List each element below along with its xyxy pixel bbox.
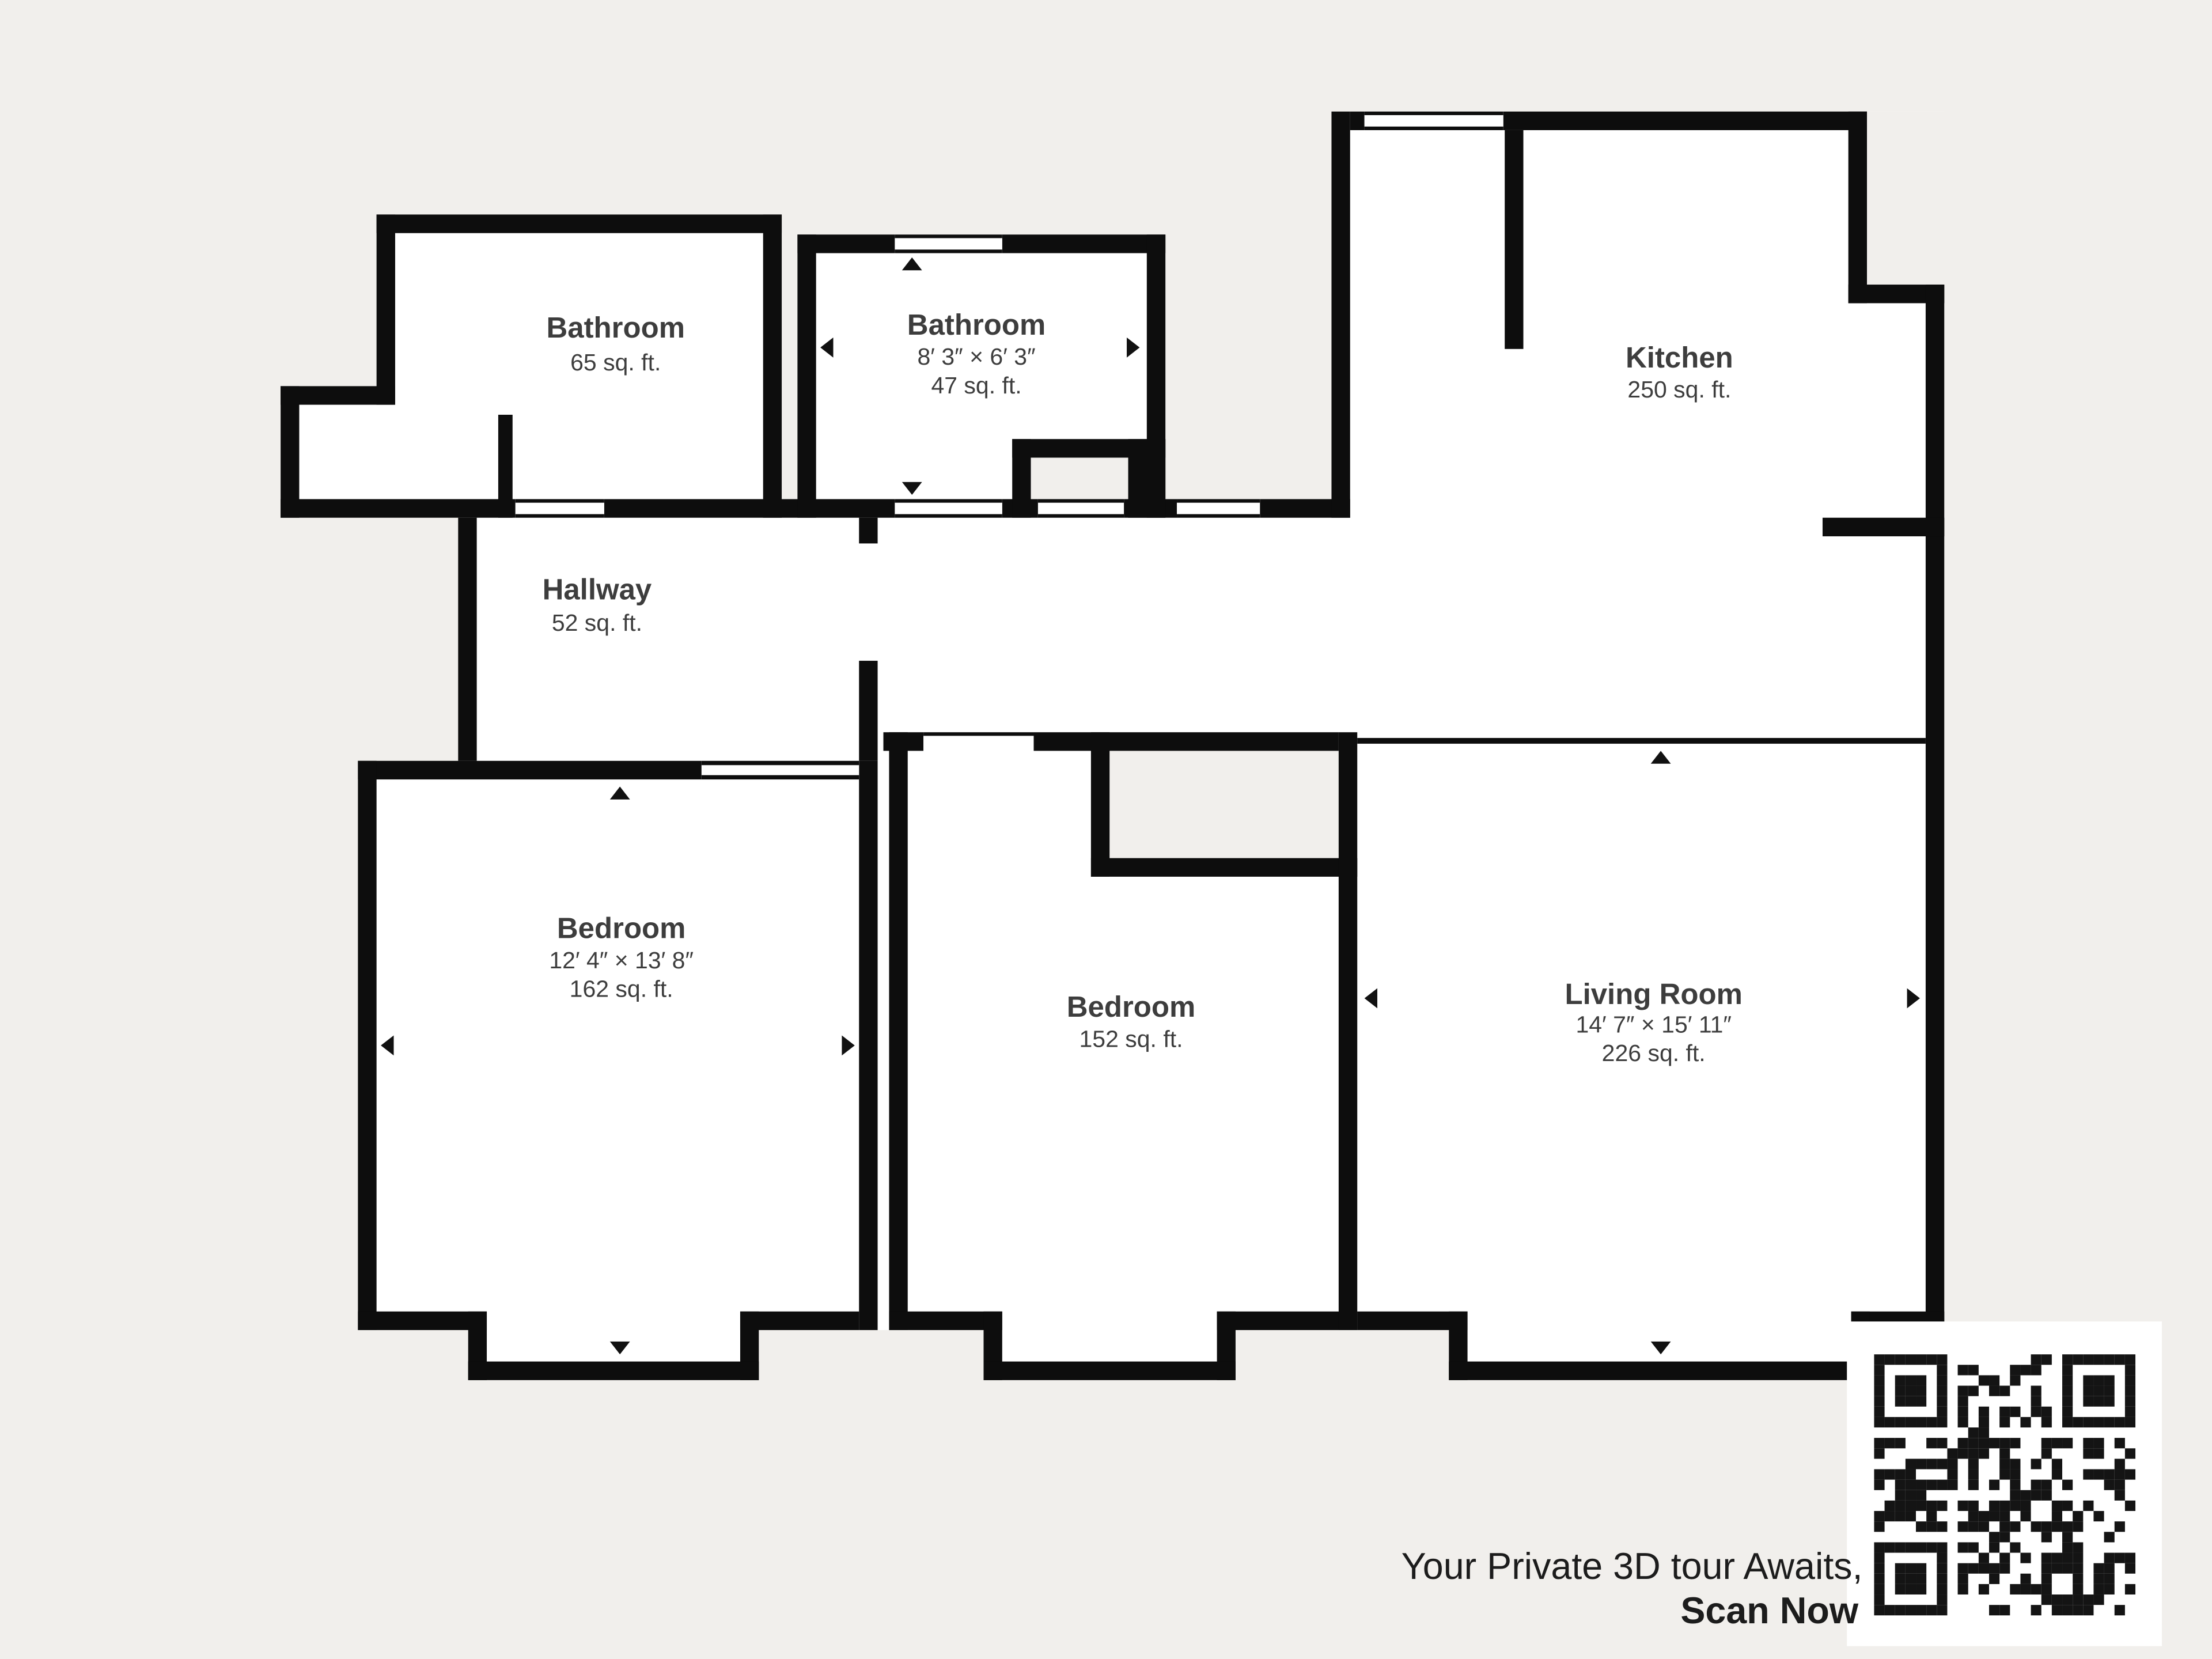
bedroom-middle-top-void: [1109, 751, 1339, 858]
duct-right-wall: [1128, 439, 1166, 518]
room-dimensions: 8′ 3″ × 6′ 3″: [918, 343, 1036, 370]
bathroom-middle-duct-void: [1031, 457, 1128, 499]
hallway-corridor-door-slot: [859, 543, 877, 661]
room-area: 65 sq. ft.: [570, 349, 661, 376]
room-name: Kitchen: [1626, 341, 1733, 374]
room-label-hallway: Hallway 52 sq. ft.: [543, 573, 652, 636]
floorplan-page: { "colors": { "background": "#f1efec", "…: [0, 0, 2212, 1659]
cta-line2: Scan Now: [1680, 1590, 1859, 1631]
room-label-bedroom-left: Bedroom 12′ 4″ × 13′ 8″ 162 sq. ft.: [549, 912, 694, 1002]
room-label-bedroom-middle: Bedroom 152 sq. ft.: [1067, 990, 1196, 1052]
bedroom-living-divider-wall: [1339, 732, 1357, 1330]
cta-line1: Your Private 3D tour Awaits,: [1402, 1546, 1863, 1587]
room-name: Bathroom: [546, 311, 685, 344]
room-area: 226 sq. ft.: [1602, 1040, 1706, 1066]
living-room-open-boundary-line: [1357, 738, 1926, 744]
room-name: Bedroom: [557, 912, 686, 945]
void-bottom-wall: [1091, 858, 1357, 877]
kitchen-top-right-notch: [1867, 112, 1950, 285]
room-name: Hallway: [543, 573, 652, 605]
room-dimensions: 12′ 4″ × 13′ 8″: [549, 947, 694, 974]
void-left-wall: [1091, 732, 1109, 877]
room-area: 152 sq. ft.: [1079, 1025, 1183, 1052]
room-name: Bedroom: [1067, 990, 1196, 1023]
room-area: 52 sq. ft.: [552, 609, 642, 636]
room-area: 162 sq. ft.: [570, 976, 673, 1002]
room-dimensions: 14′ 7″ × 15′ 11″: [1575, 1012, 1731, 1038]
floorplan-canvas: Bathroom 65 sq. ft. Bathroom 8′ 3″ × 6′ …: [0, 0, 2212, 1659]
room-area: 250 sq. ft.: [1627, 376, 1731, 403]
hallway-bottom-wall: [358, 761, 702, 779]
room-area: 47 sq. ft.: [931, 372, 1021, 399]
hallway-right-wall-lower: [859, 661, 877, 761]
hallway-left-wall: [458, 518, 476, 761]
corridor-floor: [859, 518, 1926, 744]
room-name: Bathroom: [907, 308, 1046, 341]
kitchen-bottom-stub-wall: [1823, 518, 1944, 536]
hallway-floor: [458, 518, 889, 779]
hallway-right-wall-upper: [859, 518, 877, 544]
right-exterior-wall: [1926, 285, 1944, 1330]
room-label-kitchen: Kitchen 250 sq. ft.: [1626, 341, 1733, 403]
kitchen-stub-wall: [1505, 130, 1523, 349]
room-name: Living Room: [1565, 978, 1742, 1010]
bedroom-left-floor: [358, 761, 883, 1330]
bedroom-divider-seam: [878, 761, 889, 1330]
